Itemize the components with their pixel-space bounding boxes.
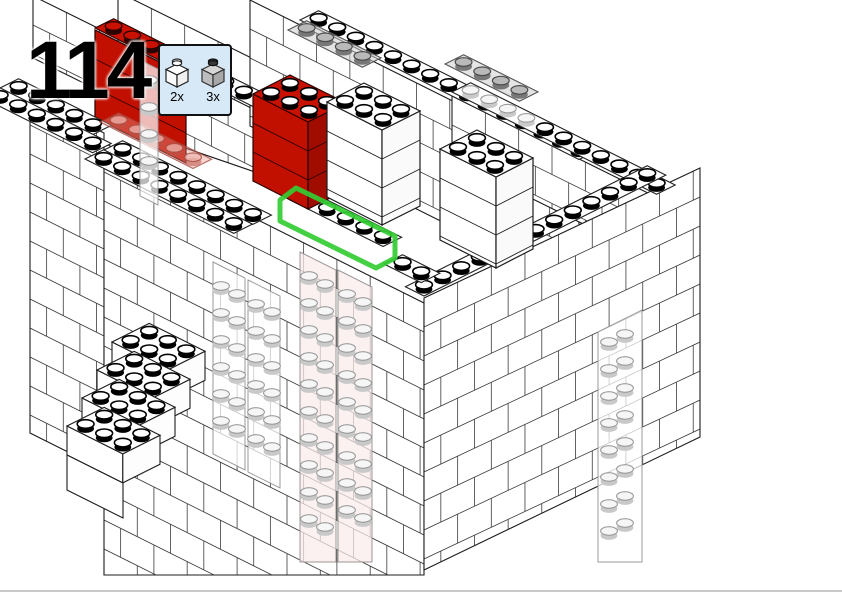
instruction-page: 114 2x 3x: [0, 0, 842, 596]
page-divider: [0, 590, 842, 592]
callout-qty-gray: 3x: [206, 89, 220, 104]
brick-1x1-gray-icon: [198, 56, 228, 88]
callout-item-white-brick: 2x: [162, 56, 192, 104]
callout-item-gray-brick: 3x: [198, 56, 228, 104]
callout-qty-white: 2x: [170, 89, 184, 104]
brick-1x1-white-icon: [162, 56, 192, 88]
parts-callout: 2x 3x: [158, 44, 232, 116]
step-number: 114: [26, 30, 149, 112]
